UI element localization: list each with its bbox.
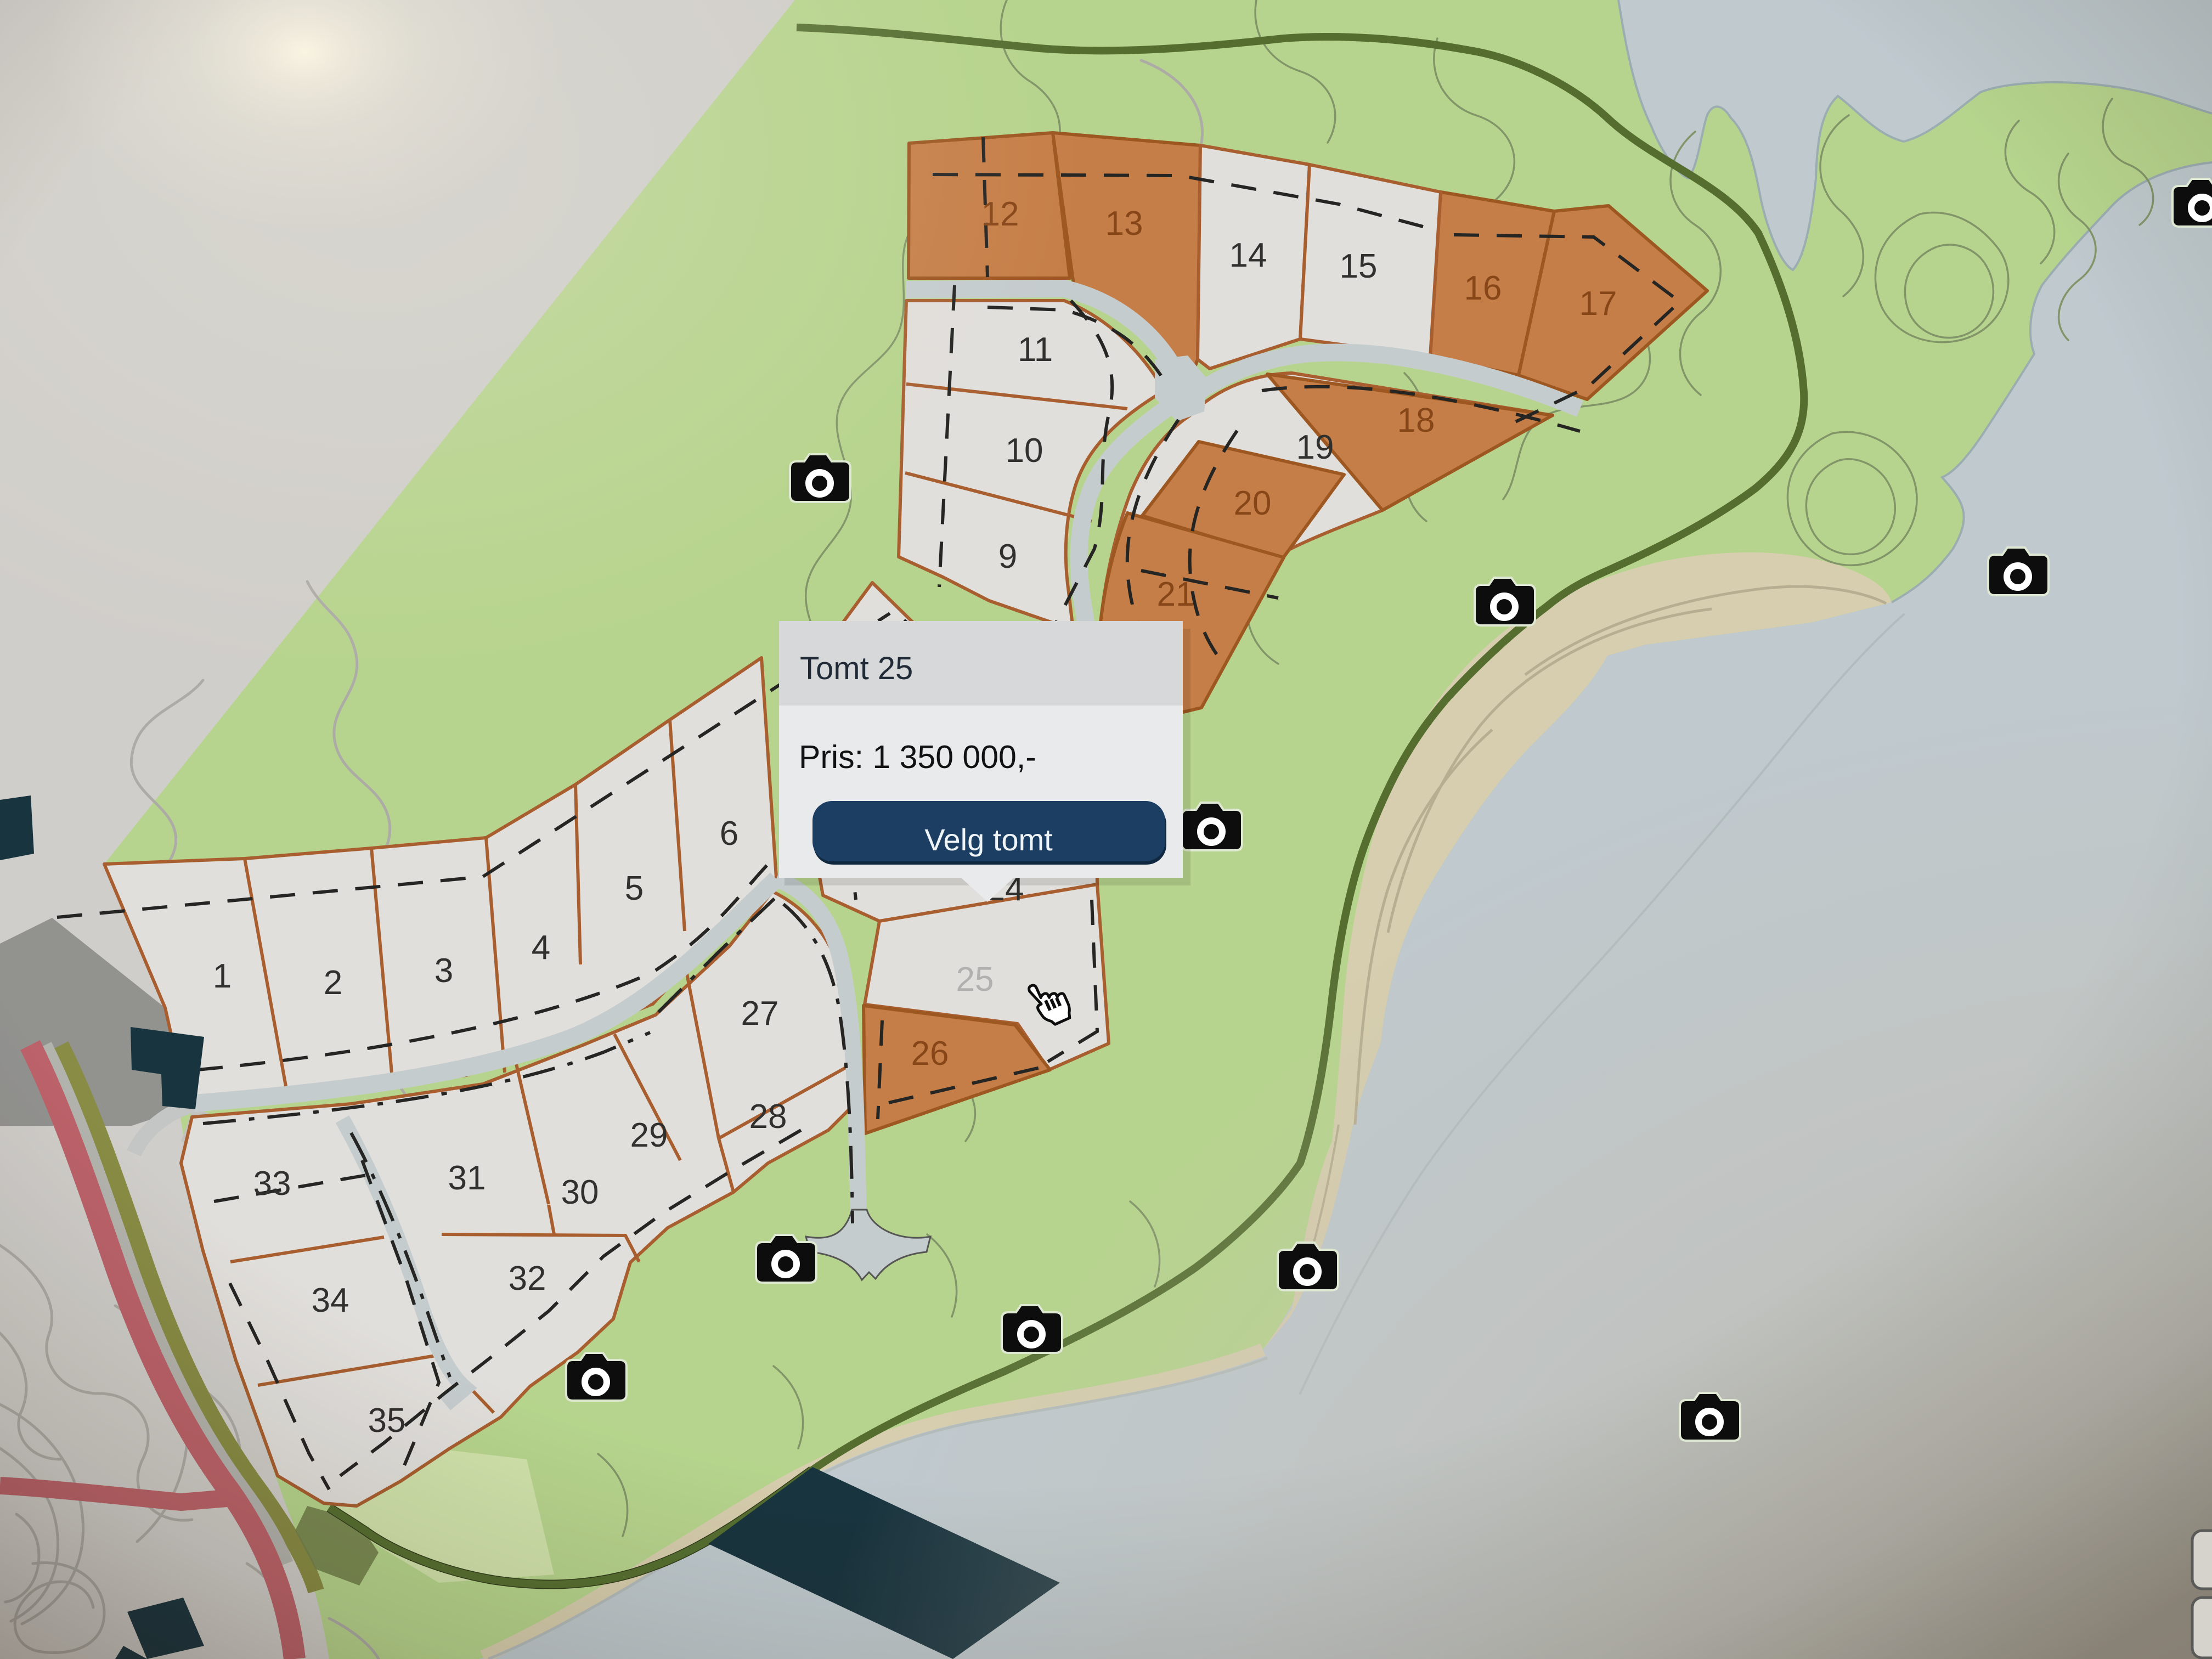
svg-text:Velg tomt: Velg tomt <box>924 822 1053 857</box>
svg-text:Pris: 1 350 000,-: Pris: 1 350 000,- <box>799 739 1036 775</box>
svg-text:Tomt 25: Tomt 25 <box>800 651 913 686</box>
